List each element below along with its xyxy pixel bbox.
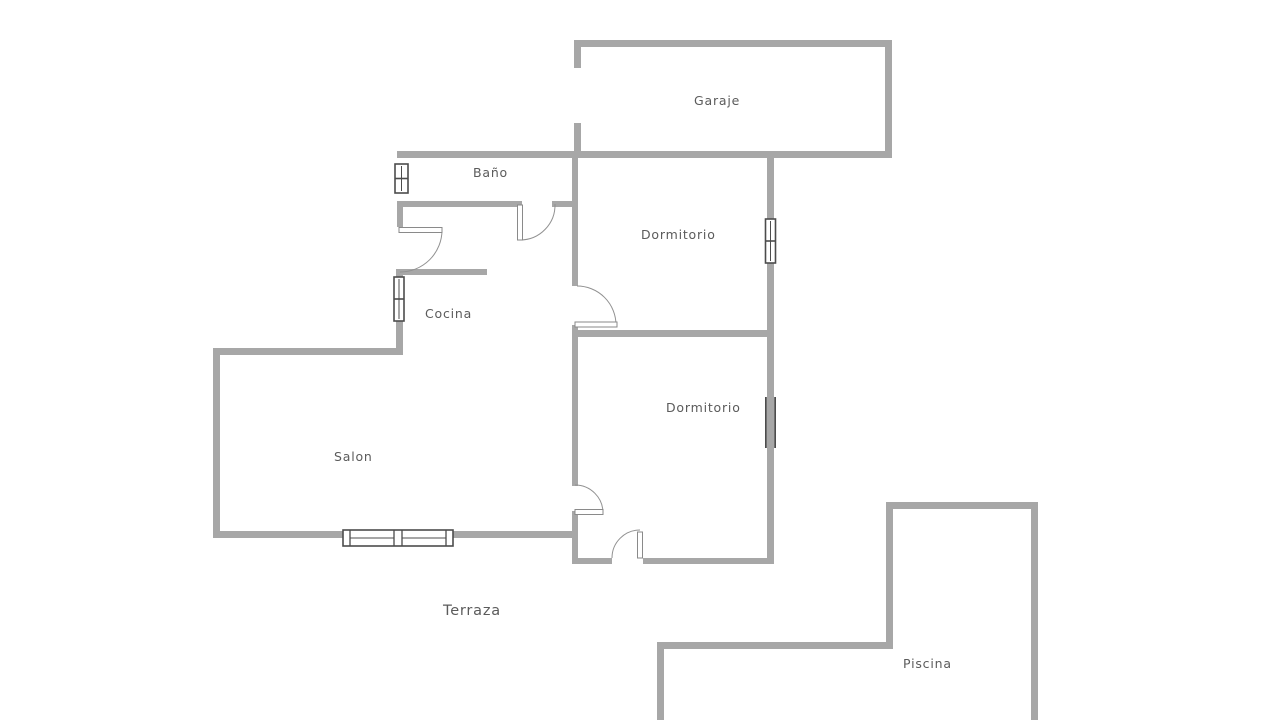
room-label-dormitorio-1: Dormitorio: [641, 229, 716, 242]
room-label-piscina: Piscina: [903, 658, 952, 671]
room-label-garaje: Garaje: [694, 95, 740, 108]
floor-plan-page: Garaje Baño Dormitorio Cocina Salon Dorm…: [0, 0, 1280, 720]
room-label-cocina: Cocina: [425, 308, 472, 321]
room-label-bano: Baño: [473, 167, 508, 180]
room-labels: Garaje Baño Dormitorio Cocina Salon Dorm…: [0, 0, 1280, 720]
room-label-terraza: Terraza: [443, 604, 501, 619]
room-label-salon: Salon: [334, 451, 373, 464]
room-label-dormitorio-2: Dormitorio: [666, 402, 741, 415]
